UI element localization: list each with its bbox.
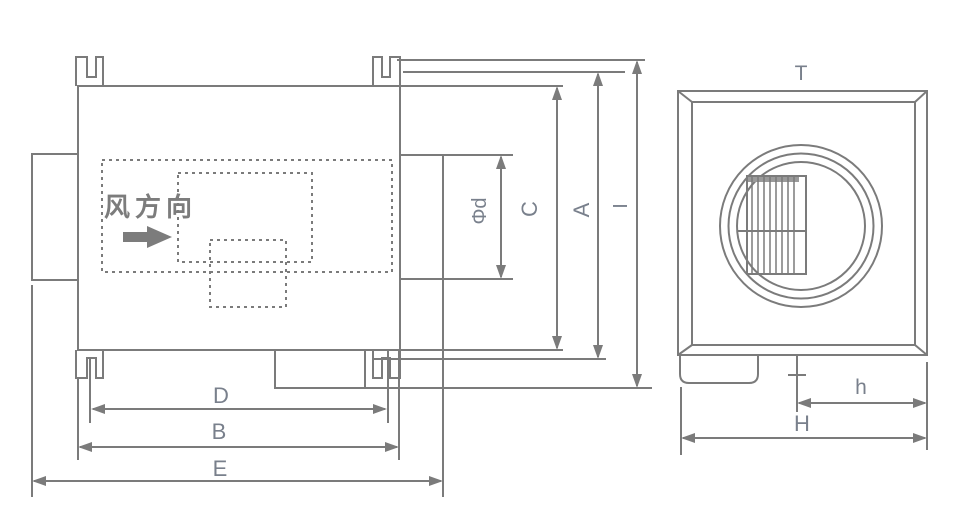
- bevel-top-right: [915, 91, 927, 102]
- flow-direction-arrow-icon: [123, 226, 172, 248]
- dim-label-phi-d: Φd: [470, 181, 490, 241]
- bevel-bottom-right: [915, 345, 927, 355]
- mount-bracket-top-left: [76, 57, 103, 86]
- front-view-body: [678, 91, 927, 455]
- dim-label-C: C: [519, 179, 541, 239]
- bevel-bottom-left: [678, 345, 692, 355]
- dim-label-I: I: [611, 176, 631, 236]
- bevel-top-left: [678, 91, 692, 102]
- mount-bracket-top-right: [373, 57, 400, 86]
- panel-outer-frame: [678, 91, 927, 355]
- dim-label-D: D: [191, 385, 251, 407]
- fan-housing-dashed: [178, 173, 312, 262]
- flow-direction-label: 风方向: [104, 194, 197, 220]
- side-view-extension-lines: [32, 60, 652, 497]
- junction-box-side: [275, 350, 365, 388]
- dim-label-H: H: [772, 413, 832, 435]
- dim-label-T: T: [771, 63, 831, 84]
- side-view-body: [32, 57, 443, 388]
- fan-dimension-drawing: 风方向 Φd C A I D B E T h H: [0, 0, 977, 518]
- inlet-duct: [32, 154, 78, 280]
- outlet-duct: [400, 155, 443, 279]
- mount-bracket-bottom-right: [373, 350, 400, 378]
- motor-dashed: [210, 240, 286, 307]
- junction-box-front: [680, 355, 758, 383]
- dim-label-A: A: [571, 180, 593, 240]
- spigot-ring-outer: [720, 145, 882, 307]
- dim-label-h: h: [831, 377, 891, 398]
- dim-label-E: E: [190, 458, 250, 480]
- dim-label-B: B: [189, 421, 249, 443]
